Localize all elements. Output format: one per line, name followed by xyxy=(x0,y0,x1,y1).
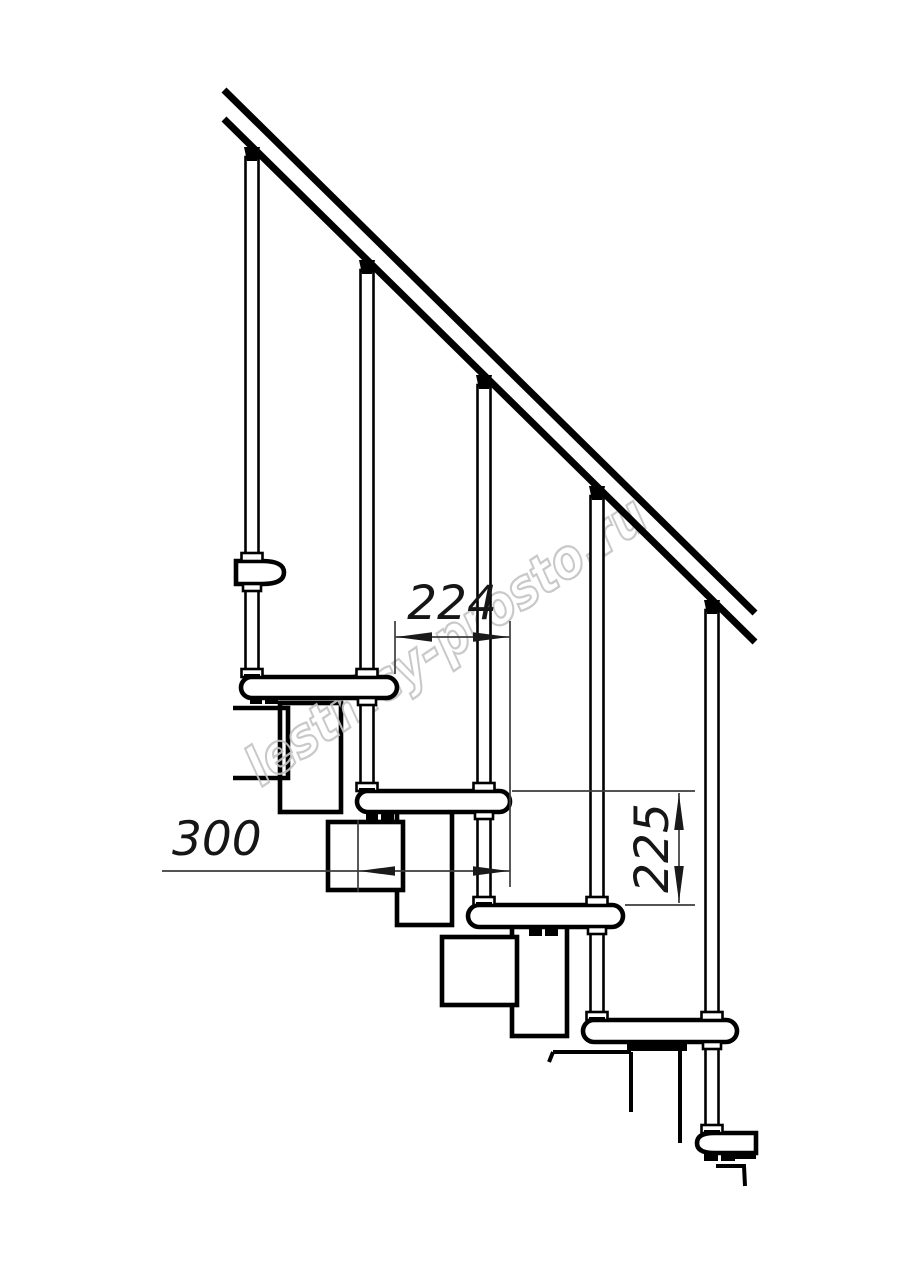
staircase-side-view-drawing: lestnicy-prosto.ru xyxy=(0,0,914,1280)
module-square-2 xyxy=(328,822,403,890)
tread-3 xyxy=(357,791,510,812)
tread-4 xyxy=(468,905,623,927)
dim-label-224: 224 xyxy=(407,576,497,631)
technical-drawing: lestnicy-prosto.ru xyxy=(0,0,914,1280)
tread-5 xyxy=(583,1020,737,1042)
baluster-5 xyxy=(706,610,719,1133)
baluster-3 xyxy=(478,385,491,905)
baluster-2 xyxy=(361,270,374,791)
module-square-3 xyxy=(442,937,517,1005)
dim-label-225: 225 xyxy=(625,803,680,893)
baluster-1 xyxy=(246,157,259,677)
module-block-3 xyxy=(512,926,567,1036)
tread-2 xyxy=(241,677,397,698)
baluster-4 xyxy=(591,496,604,1020)
tread-6 xyxy=(697,1133,756,1153)
tread-1 xyxy=(236,561,284,584)
dim-label-300: 300 xyxy=(172,812,262,867)
